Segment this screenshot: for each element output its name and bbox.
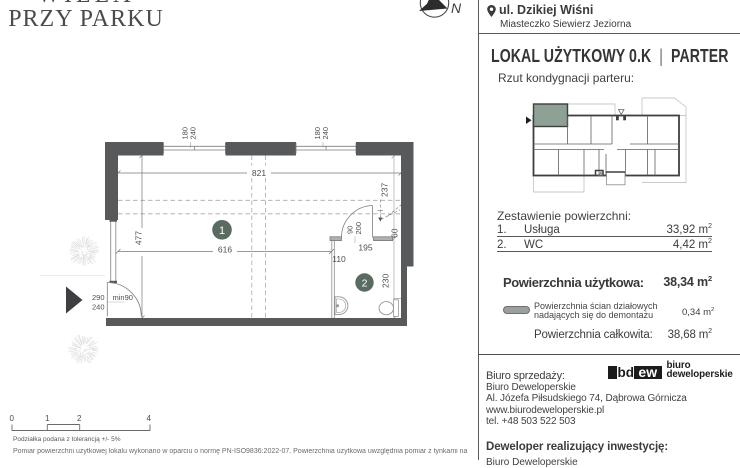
svg-text:2: 2 — [77, 414, 82, 423]
svg-text:110: 110 — [332, 254, 346, 264]
svg-text:2: 2 — [362, 277, 368, 289]
svg-text:821: 821 — [252, 168, 266, 178]
svg-text:240: 240 — [321, 127, 330, 140]
svg-text:1: 1 — [219, 225, 225, 237]
svg-text:195: 195 — [358, 243, 372, 253]
svg-text:1: 1 — [45, 414, 50, 423]
svg-text:616: 616 — [218, 245, 232, 255]
svg-text:240: 240 — [92, 302, 105, 311]
svg-text:4: 4 — [147, 414, 152, 423]
svg-text:240: 240 — [189, 127, 198, 140]
svg-text:290: 290 — [92, 293, 105, 302]
svg-text:min90: min90 — [113, 293, 133, 302]
svg-text:477: 477 — [134, 231, 144, 245]
svg-text:200: 200 — [354, 222, 363, 235]
svg-text:0: 0 — [10, 414, 15, 423]
svg-text:237: 237 — [380, 183, 390, 197]
svg-text:230: 230 — [381, 274, 391, 288]
